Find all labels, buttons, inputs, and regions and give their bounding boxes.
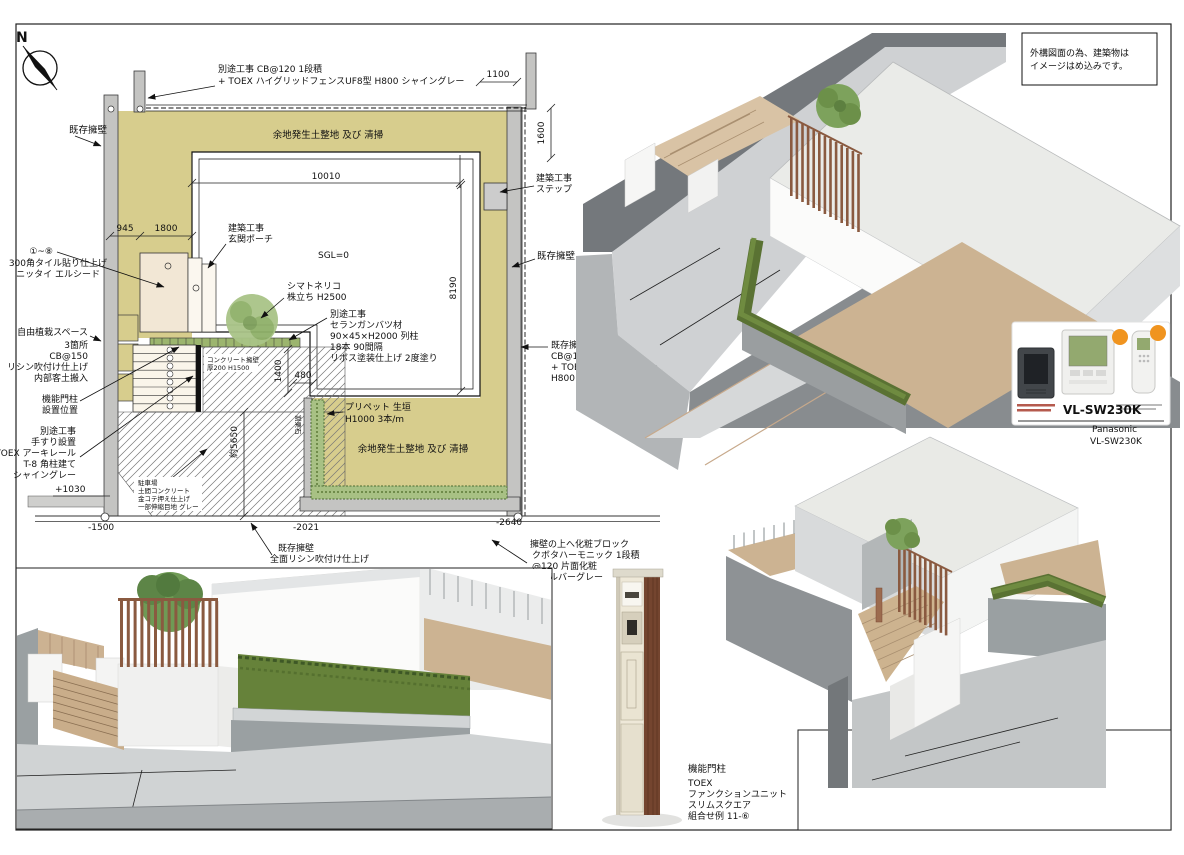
plan-stairs [133,345,201,412]
label-parking-2: 土間コンクリート [138,486,190,495]
label-parking-4: 一部伸縮目地 グレー [138,502,199,511]
dim-480: 480 [294,371,311,381]
badge-orange-2 [1150,325,1166,341]
label-deco-2: クボタハーモニック 1段積 [532,549,640,561]
handset-unit [1132,331,1155,393]
gatepost-line-4: スリムスクエア [688,800,751,811]
label-rail-4: T-8 角柱建て [22,458,76,470]
label-ground-bottom: 余地発生土整地 及び 清掃 [358,443,469,455]
label-ground-top: 余地発生土整地 及び 清掃 [273,129,384,141]
label-tile-3: ニッタイ エルシード [16,269,100,280]
dim-1400: 1400 [274,359,284,382]
handrail-bar [196,345,201,412]
dim-945: 945 [116,224,133,234]
note-line-1: 外構図面の為、建築物は [1030,47,1129,59]
level-minus2640: -2640 [496,518,522,528]
label-plant-2: 3箇所 [64,339,88,351]
gatepost-label: 機能門柱 TOEX ファンクションユニット スリムスクエア 組合せ例 11-⑥ [687,763,787,822]
dim-5650: 約5650 [228,426,240,458]
label-fence-top-1: 別途工事 CB@120 1段積 [218,63,322,75]
label-porch-1: 建築工事 [228,222,264,234]
gatepost-photo [602,569,682,827]
label-sgl: SGL=0 [318,251,349,261]
label-privet-1: プリペット 生垣 [345,401,411,413]
label-deco-1: 擁壁の上へ化粧ブロック [530,538,629,550]
drawing-sheet: N [0,0,1184,855]
monitor-unit [1062,330,1114,394]
label-wallbottom-1: 既存擁壁 [278,542,314,554]
label-tile-1: ①~⑧ [29,247,53,257]
label-parking-1: 駐車場 [138,478,158,487]
gate-post-mini [876,588,882,622]
render-aerial-bottom [726,437,1106,788]
product-caption-brand: Panasonic [1092,425,1137,435]
label-rail-5: シャイングレー [13,469,76,481]
render-street [16,566,552,829]
dim-8190: 8190 [449,276,459,299]
label-rail-3: TOEX アーキレール [0,449,76,459]
label-tile-2: 300角タイル貼り仕上げ [9,257,107,269]
product-panel: VL-SW230K Panasonic VL-SW230K [1012,322,1170,447]
label-tree-1: シマトネリコ [287,281,341,292]
label-tree-2: 株立ち H2500 [287,291,347,303]
level-minus2021: -2021 [293,523,319,533]
label-plant-4: リシン吹付け仕上げ [7,361,88,373]
dim-10010: 10010 [312,172,341,182]
label-plant-3: CB@150 [49,352,88,362]
product-caption-model: VL-SW230K [1090,437,1143,447]
label-col-5: リボス塗装仕上げ 2度塗り [330,352,438,364]
sheet-canvas: N [0,0,1184,855]
label-concwall-2: 厚200 H1500 [207,364,249,372]
label-col-3: 90×45×H2000 列柱 [330,330,419,342]
level-minus1500: -1500 [88,523,114,533]
gatepost-line-5: 組合せ例 11-⑥ [688,810,750,822]
label-plant-5: 内部客土搬入 [34,372,88,384]
gatepost-line-2: TOEX [687,779,712,789]
step-block [484,183,507,210]
nameplate [625,592,639,598]
label-step-2: ステップ [536,184,572,195]
gatepost-line-1: 機能門柱 [688,763,727,775]
plan-tree [226,294,278,346]
label-fence-top-2: + TOEX ハイグリッドフェンスUF8型 H800 シャイングレー [218,75,464,87]
label-rail-1: 別途工事 [40,425,76,437]
entrance-porch [140,253,216,332]
label-rail-2: 手すり設置 [31,436,76,448]
label-parking-3: 金コテ押え仕上げ [138,494,191,503]
north-letter: N [16,30,28,46]
label-porch-2: 玄関ポーチ [228,233,273,245]
door-station [1018,348,1054,398]
label-col-1: 別途工事 [330,308,366,320]
label-gatepos-2: 設置位置 [42,404,78,416]
level-plus1030: +1030 [55,485,86,495]
label-gatepos-1: 機能門柱 [42,393,78,405]
label-step-1: 建築工事 [536,172,572,184]
note-box: 外構図面の為、建築物は イメージはめ込みです。 [1022,33,1157,85]
label-plant-1: 自由植栽スペース [17,326,88,338]
mail-door [621,652,643,720]
label-existing-wall-right: 既存擁壁 [537,250,576,262]
label-concwall-1: コンクリート擁壁 [207,355,260,364]
dim-1100: 1100 [487,70,510,80]
label-col-2: セランガンバツ材 [330,319,402,331]
label-existing-wall-left: 既存擁壁 [69,124,108,136]
dim-1600: 1600 [537,121,547,144]
badge-orange-1 [1112,329,1128,345]
label-wallbottom-2: 全面リシン吹付け仕上げ [270,553,369,565]
north-arrow: N [16,30,57,90]
label-privet-2: H1000 3本/m [345,413,404,425]
label-col-4: 18本 90間隔 [330,341,383,353]
dim-1800: 1800 [155,224,178,234]
note-line-2: イメージはめ込みです。 [1030,61,1128,72]
gatepost-line-3: ファンクションユニット [688,789,787,800]
label-rubble: 割栗石 [294,415,303,435]
product-model-big: VL-SW230K [1063,403,1142,417]
